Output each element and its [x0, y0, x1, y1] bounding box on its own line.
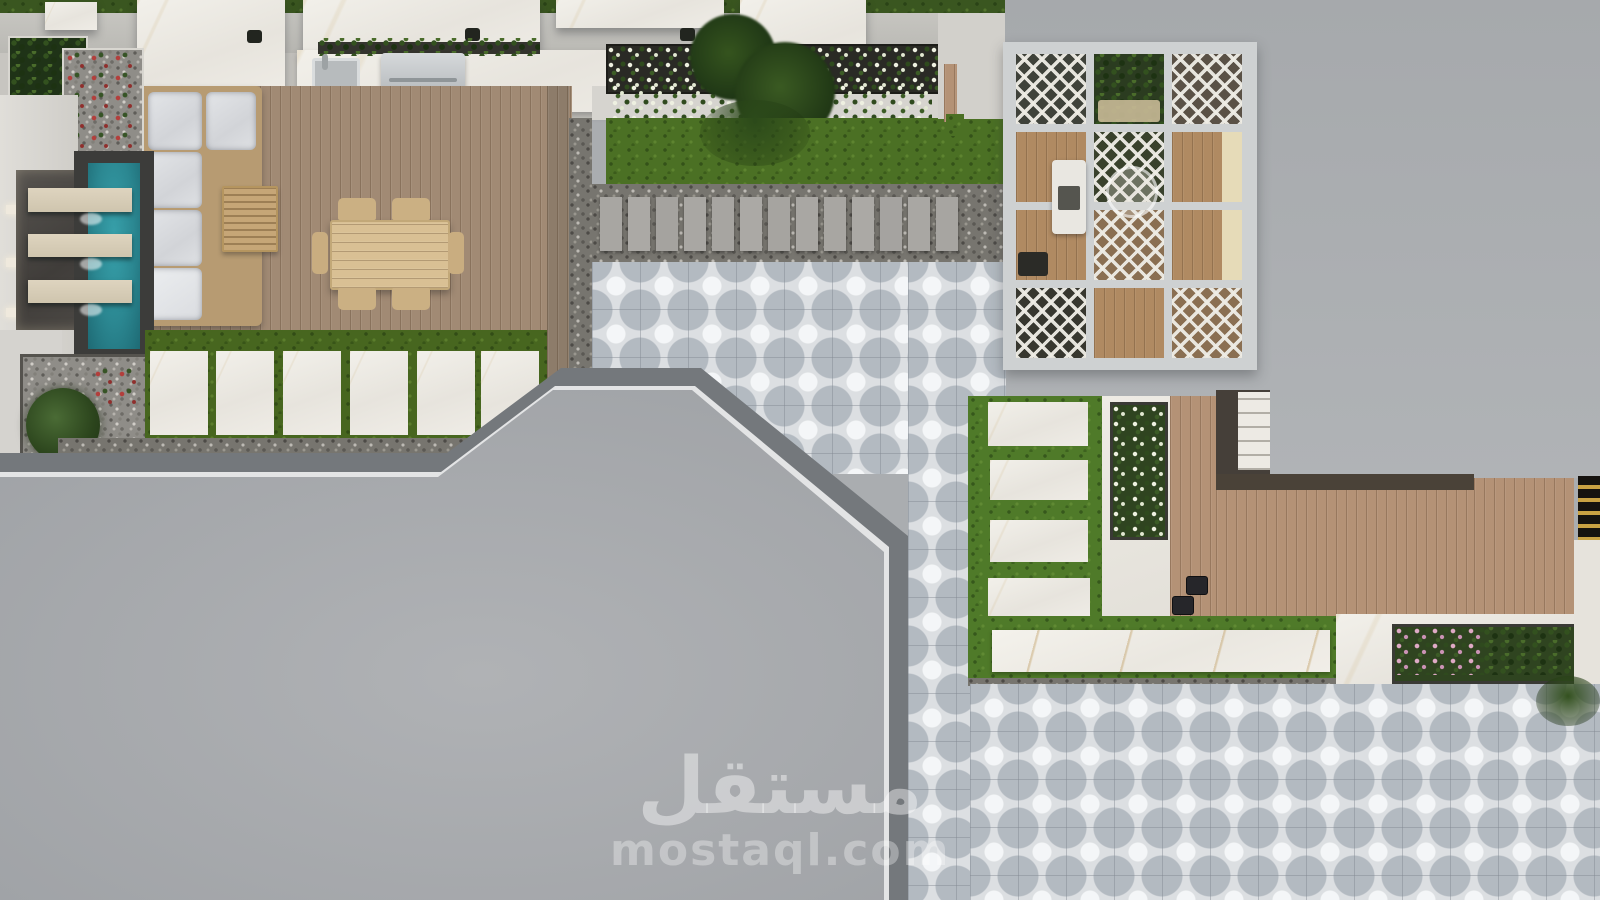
stepping-stone	[852, 197, 874, 251]
pergola-lattice-panel	[1016, 288, 1086, 358]
marble-step-slab	[988, 578, 1090, 618]
landscape-top-view-render: مستقل mostaql.com	[0, 0, 1600, 900]
stepping-stone	[880, 197, 902, 251]
stepping-stone	[768, 197, 790, 251]
waterfall-foam	[80, 213, 102, 225]
patterned-tile-lower	[970, 684, 1600, 900]
marble-paver	[216, 351, 274, 435]
waterfall-blade	[28, 280, 132, 303]
table-tray	[1058, 186, 1080, 210]
stepping-stone-row	[600, 197, 968, 251]
stepping-stone	[712, 197, 734, 251]
ornamental-grasses	[1483, 627, 1571, 675]
marble-step-slab	[988, 402, 1088, 446]
sofa-below-pergola	[1098, 100, 1160, 122]
stepping-stone	[796, 197, 818, 251]
grass-tuft	[1536, 676, 1600, 726]
stepping-stone	[740, 197, 762, 251]
dining-chair	[338, 288, 376, 310]
flower-grass-planter	[1392, 624, 1580, 684]
pergola-lattice-panel	[1094, 210, 1164, 280]
stepping-stone	[600, 197, 622, 251]
stepping-stone	[656, 197, 678, 251]
waterfall-foam	[80, 258, 102, 270]
red-flower-accents	[92, 368, 136, 408]
dining-end-chair	[312, 232, 328, 274]
sink-faucet	[322, 54, 328, 70]
pergola-lattice-panel	[1016, 54, 1086, 124]
pergola-open-panel-plants	[1094, 54, 1164, 124]
palm-overhang	[700, 100, 810, 166]
wood-deck-far-right	[1474, 478, 1574, 620]
round-table-under-lattice	[1106, 166, 1158, 218]
deck-spotlight	[1172, 596, 1194, 615]
marble-beam	[556, 0, 724, 28]
pergola-white-table	[1052, 160, 1086, 234]
beige-cushion-strip	[1222, 132, 1242, 202]
sofa-cushion	[146, 210, 202, 266]
waterfall-blade	[28, 188, 132, 212]
marble-paver	[283, 351, 341, 435]
pergola-deck-panel	[1094, 288, 1164, 358]
marble-beam	[45, 2, 97, 30]
marble-step-slab	[990, 460, 1088, 500]
long-marble-slab	[992, 630, 1330, 672]
stair-niche	[1238, 392, 1270, 470]
ceiling-spotlight-icon	[247, 30, 262, 43]
divider-grass-bit	[946, 114, 964, 136]
grill-cart	[1018, 252, 1048, 276]
waterfall-foam	[80, 304, 102, 316]
stepping-stone	[628, 197, 650, 251]
white-flower-planter	[1110, 402, 1168, 540]
pink-flowers	[1395, 627, 1485, 675]
stepping-stone	[908, 197, 930, 251]
sofa-cushion	[148, 92, 202, 150]
louver-vent-strip	[1578, 476, 1600, 540]
dining-end-chair	[448, 232, 464, 274]
sofa-cushion	[146, 152, 202, 208]
dark-border-horizontal	[1216, 474, 1474, 490]
bbq-grill-handle	[389, 78, 457, 82]
marble-paver	[417, 351, 475, 435]
edge-wall-right	[1574, 540, 1600, 692]
stepping-stone	[684, 197, 706, 251]
pergola-deck-panel	[1172, 210, 1242, 280]
stepping-stone	[936, 197, 958, 251]
marble-step-slab	[990, 520, 1088, 562]
dining-table	[330, 220, 450, 290]
pergola-lattice-panel	[1172, 54, 1242, 124]
watermark-latin: mostaql.com	[610, 826, 950, 877]
slatted-coffee-table	[222, 186, 278, 252]
marble-paver	[350, 351, 408, 435]
dining-chair	[392, 288, 430, 310]
pergola	[1003, 42, 1257, 370]
pergola-lattice-panel	[1172, 288, 1242, 358]
beige-cushion-strip	[1222, 210, 1242, 280]
watermark-arabic: مستقل	[610, 748, 950, 826]
dining-chair	[338, 198, 376, 220]
marble-beam	[137, 0, 285, 96]
watermark: مستقل mostaql.com	[610, 748, 950, 877]
deck-spotlight	[1186, 576, 1208, 595]
waterfall-blade	[28, 234, 132, 257]
dining-chair	[392, 198, 430, 220]
marble-paver	[150, 351, 208, 435]
sofa-chaise-cushion	[146, 268, 202, 320]
stepping-stone	[824, 197, 846, 251]
sofa-cushion	[206, 92, 256, 150]
wood-walk-strip	[547, 86, 569, 390]
pergola-deck-panel	[1172, 132, 1242, 202]
